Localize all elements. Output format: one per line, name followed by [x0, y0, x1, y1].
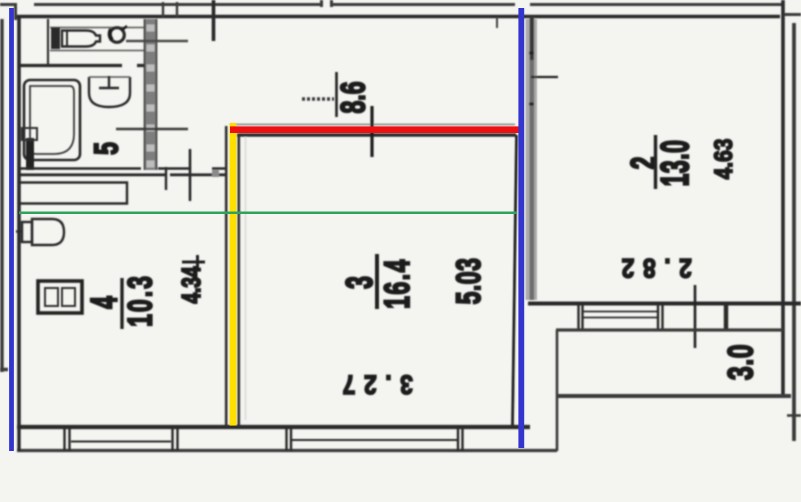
svg-text:3.27: 3.27	[334, 369, 413, 398]
svg-text:2.82: 2.82	[613, 253, 692, 282]
svg-text:5.03: 5.03	[450, 258, 489, 305]
svg-text:13.0: 13.0	[653, 140, 697, 187]
svg-text:8.6: 8.6	[334, 82, 373, 114]
svg-text:16.4: 16.4	[378, 258, 417, 309]
svg-text:4.34: 4.34	[177, 266, 205, 303]
svg-text:3.0: 3.0	[721, 344, 760, 380]
svg-text:10.3: 10.3	[121, 274, 160, 327]
svg-text:5: 5	[88, 142, 125, 155]
svg-text:3: 3	[339, 276, 381, 289]
svg-text:4.63: 4.63	[709, 138, 737, 179]
svg-text:4: 4	[83, 296, 125, 309]
